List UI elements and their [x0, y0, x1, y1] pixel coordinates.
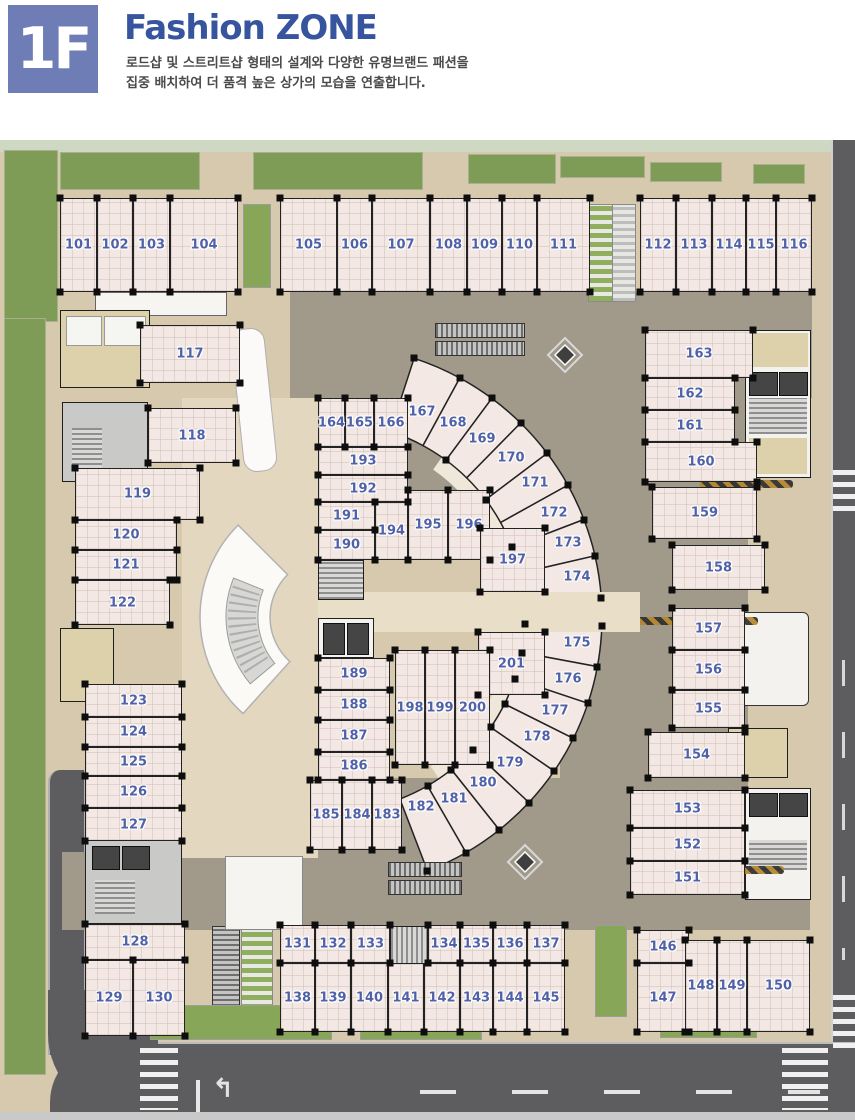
- column: [445, 557, 452, 564]
- column: [627, 858, 634, 865]
- column: [669, 725, 676, 732]
- column: [315, 749, 322, 756]
- column: [277, 922, 284, 929]
- column: [807, 1029, 814, 1036]
- column: [542, 629, 549, 636]
- column: [372, 499, 379, 506]
- column: [167, 289, 174, 296]
- column: [233, 460, 240, 467]
- column: [174, 577, 181, 584]
- column: [315, 777, 322, 784]
- column: [627, 787, 634, 794]
- column: [277, 195, 284, 202]
- column: [424, 782, 431, 789]
- column: [179, 838, 186, 845]
- column: [277, 1029, 284, 1036]
- column: [642, 375, 649, 382]
- column: [130, 289, 137, 296]
- column: [385, 1029, 392, 1036]
- column: [754, 479, 761, 486]
- column: [490, 922, 497, 929]
- column: [312, 922, 319, 929]
- column: [405, 557, 412, 564]
- column: [732, 407, 739, 414]
- column: [130, 1033, 137, 1040]
- column: [750, 375, 757, 382]
- column: [167, 577, 174, 584]
- column: [525, 799, 532, 806]
- column: [562, 960, 569, 967]
- column: [235, 289, 242, 296]
- column: [369, 195, 376, 202]
- column: [742, 858, 749, 865]
- column: [490, 960, 497, 967]
- column: [642, 439, 649, 446]
- column: [642, 479, 649, 486]
- floor-plan: ↰: [0, 140, 855, 1120]
- column: [645, 775, 652, 782]
- column: [642, 327, 649, 334]
- column: [72, 465, 79, 472]
- column: [411, 355, 418, 362]
- column: [371, 444, 378, 451]
- column: [94, 195, 101, 202]
- column: [773, 195, 780, 202]
- column-layer: [0, 140, 855, 1120]
- column: [754, 536, 761, 543]
- column: [669, 647, 676, 654]
- column: [452, 762, 459, 769]
- column: [179, 773, 186, 780]
- column: [137, 380, 144, 387]
- column: [82, 957, 89, 964]
- description-line-2: 집중 배치하여 더 품격 높은 상가의 모습을 연출합니다.: [126, 74, 469, 94]
- column: [669, 587, 676, 594]
- column: [372, 557, 379, 564]
- column: [592, 552, 599, 559]
- description-line-1: 로드샵 및 스트리트샵 형태의 설계와 다양한 유명브랜드 패션을: [126, 54, 469, 74]
- column: [744, 1029, 751, 1036]
- column: [487, 647, 494, 654]
- column: [342, 395, 349, 402]
- column: [72, 547, 79, 554]
- column: [542, 589, 549, 596]
- column: [488, 395, 495, 402]
- column: [686, 927, 693, 934]
- page: 1F Fashion ZONE 로드샵 및 스트리트샵 형태의 설계와 다양한 …: [0, 0, 855, 1120]
- column: [594, 663, 601, 670]
- column: [452, 647, 459, 654]
- column: [307, 777, 314, 784]
- column: [82, 714, 89, 721]
- column: [669, 605, 676, 612]
- column: [477, 525, 484, 532]
- column: [634, 960, 641, 967]
- column: [369, 777, 376, 784]
- column: [742, 605, 749, 612]
- column: [673, 289, 680, 296]
- column: [551, 768, 558, 775]
- column: [509, 544, 516, 551]
- column: [487, 487, 494, 494]
- column: [637, 289, 644, 296]
- column: [179, 714, 186, 721]
- column: [369, 847, 376, 854]
- column: [277, 289, 284, 296]
- column: [669, 687, 676, 694]
- column: [496, 826, 503, 833]
- column: [315, 472, 322, 479]
- column: [94, 289, 101, 296]
- column: [312, 1029, 319, 1036]
- column: [584, 700, 591, 707]
- column: [649, 536, 656, 543]
- column: [387, 922, 394, 929]
- page-title: Fashion ZONE: [124, 8, 377, 48]
- column: [762, 587, 769, 594]
- column: [387, 960, 394, 967]
- column: [422, 762, 429, 769]
- column: [463, 849, 470, 856]
- column: [477, 589, 484, 596]
- column: [57, 289, 64, 296]
- column: [371, 395, 378, 402]
- column: [562, 922, 569, 929]
- column: [773, 289, 780, 296]
- column: [237, 322, 244, 329]
- column: [82, 1033, 89, 1040]
- column: [682, 937, 689, 944]
- column: [312, 960, 319, 967]
- column: [235, 195, 242, 202]
- column: [392, 647, 399, 654]
- column: [197, 517, 204, 524]
- column: [511, 675, 518, 682]
- column: [682, 1029, 689, 1036]
- column: [457, 960, 464, 967]
- column: [475, 629, 482, 636]
- column: [714, 1029, 721, 1036]
- column: [570, 735, 577, 742]
- column: [82, 921, 89, 928]
- column: [518, 649, 525, 656]
- column: [524, 960, 531, 967]
- column: [542, 692, 549, 699]
- column: [732, 439, 739, 446]
- column: [72, 622, 79, 629]
- column: [499, 289, 506, 296]
- column: [182, 957, 189, 964]
- column: [57, 195, 64, 202]
- column: [405, 487, 412, 494]
- column: [182, 921, 189, 928]
- column: [405, 444, 412, 451]
- column: [174, 547, 181, 554]
- column: [524, 1029, 531, 1036]
- column: [167, 195, 174, 202]
- column: [809, 289, 816, 296]
- column: [487, 724, 494, 731]
- column: [342, 444, 349, 451]
- column: [315, 687, 322, 694]
- column: [315, 499, 322, 506]
- column: [501, 701, 508, 708]
- column: [742, 687, 749, 694]
- column: [179, 744, 186, 751]
- column: [348, 960, 355, 967]
- column: [807, 937, 814, 944]
- column: [425, 960, 432, 967]
- column: [387, 777, 394, 784]
- column: [487, 557, 494, 564]
- column: [457, 1029, 464, 1036]
- column: [464, 289, 471, 296]
- column: [315, 444, 322, 451]
- column: [174, 517, 181, 524]
- column: [82, 773, 89, 780]
- column: [348, 922, 355, 929]
- column: [598, 595, 605, 602]
- column: [475, 692, 482, 699]
- column: [421, 1029, 428, 1036]
- column: [744, 937, 751, 944]
- column: [179, 681, 186, 688]
- column: [534, 195, 541, 202]
- column: [445, 487, 452, 494]
- column: [754, 439, 761, 446]
- column: [339, 847, 346, 854]
- column: [580, 516, 587, 523]
- column: [182, 1033, 189, 1040]
- column: [307, 847, 314, 854]
- column: [334, 195, 341, 202]
- column: [469, 746, 476, 753]
- column: [742, 647, 749, 654]
- column: [464, 195, 471, 202]
- column: [387, 717, 394, 724]
- floor-badge: 1F: [8, 5, 98, 93]
- column: [637, 195, 644, 202]
- column: [457, 922, 464, 929]
- column: [369, 289, 376, 296]
- page-description: 로드샵 및 스트리트샵 형태의 설계와 다양한 유명브랜드 패션을 집중 배치하…: [126, 54, 469, 93]
- column: [669, 542, 676, 549]
- column: [424, 867, 431, 874]
- column: [645, 729, 652, 736]
- column: [315, 557, 322, 564]
- column: [642, 407, 649, 414]
- column: [562, 1029, 569, 1036]
- column: [750, 327, 757, 334]
- column: [542, 525, 549, 532]
- column: [399, 777, 406, 784]
- column: [809, 195, 816, 202]
- column: [732, 375, 739, 382]
- column: [587, 195, 594, 202]
- column: [524, 922, 531, 929]
- column: [673, 195, 680, 202]
- column: [405, 472, 412, 479]
- column: [425, 922, 432, 929]
- column: [487, 762, 494, 769]
- column: [82, 838, 89, 845]
- column: [145, 460, 152, 467]
- column: [442, 457, 449, 464]
- column: [72, 577, 79, 584]
- column: [348, 1029, 355, 1036]
- column: [315, 717, 322, 724]
- column: [649, 484, 656, 491]
- column: [743, 289, 750, 296]
- column: [742, 825, 749, 832]
- column: [709, 195, 716, 202]
- column: [82, 744, 89, 751]
- column: [277, 960, 284, 967]
- column: [427, 195, 434, 202]
- column: [427, 289, 434, 296]
- column: [634, 1029, 641, 1036]
- column: [233, 405, 240, 412]
- column: [587, 289, 594, 296]
- column: [315, 527, 322, 534]
- column: [145, 405, 152, 412]
- column: [405, 499, 412, 506]
- column: [130, 957, 137, 964]
- column: [197, 465, 204, 472]
- column: [742, 892, 749, 899]
- column: [405, 395, 412, 402]
- column: [392, 762, 399, 769]
- column: [315, 395, 322, 402]
- column: [517, 419, 524, 426]
- column: [372, 527, 379, 534]
- column: [237, 380, 244, 387]
- column: [387, 655, 394, 662]
- column: [387, 749, 394, 756]
- column: [544, 450, 551, 457]
- column: [742, 775, 749, 782]
- column: [534, 289, 541, 296]
- column: [315, 655, 322, 662]
- column: [339, 777, 346, 784]
- column: [627, 892, 634, 899]
- column: [82, 681, 89, 688]
- column: [627, 825, 634, 832]
- column: [82, 805, 89, 812]
- column: [634, 927, 641, 934]
- column: [387, 687, 394, 694]
- column: [179, 805, 186, 812]
- column: [521, 620, 528, 627]
- column: [742, 787, 749, 794]
- column: [399, 847, 406, 854]
- column: [72, 517, 79, 524]
- column: [130, 195, 137, 202]
- column: [490, 1029, 497, 1036]
- column: [482, 496, 489, 503]
- column: [167, 622, 174, 629]
- column: [762, 542, 769, 549]
- column: [564, 482, 571, 489]
- column: [714, 937, 721, 944]
- column: [422, 647, 429, 654]
- floor-badge-label: 1F: [17, 16, 90, 82]
- column: [709, 289, 716, 296]
- column: [456, 374, 463, 381]
- column: [137, 322, 144, 329]
- column: [334, 289, 341, 296]
- column: [499, 195, 506, 202]
- column: [743, 195, 750, 202]
- column: [598, 623, 605, 630]
- column: [686, 960, 693, 967]
- column: [742, 725, 749, 732]
